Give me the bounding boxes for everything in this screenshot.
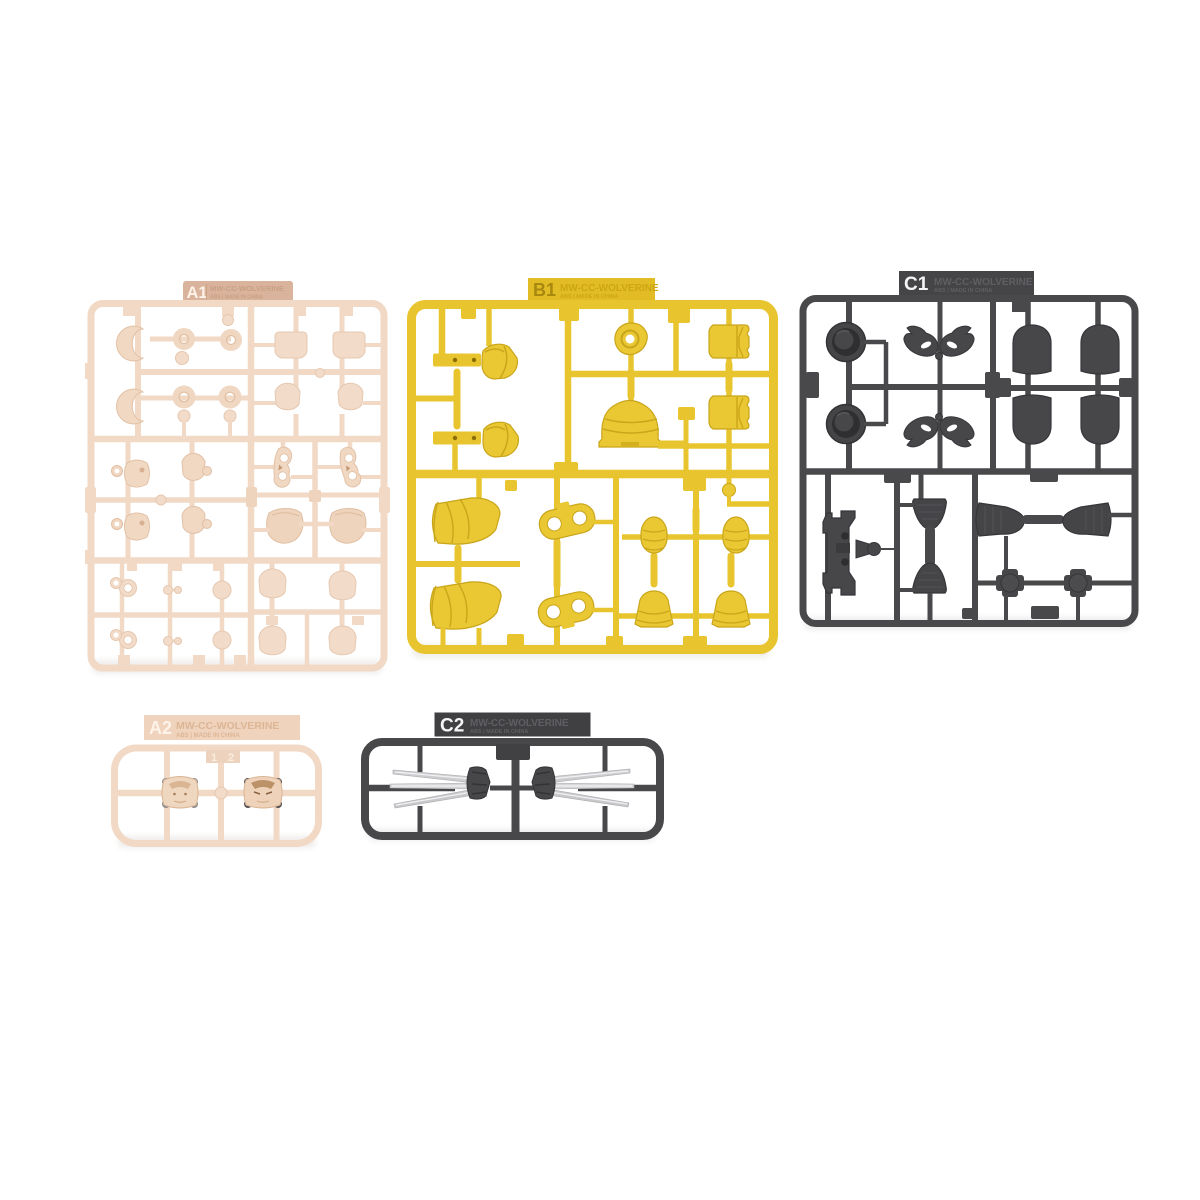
svg-text:MW-CC-WOLVERINE: MW-CC-WOLVERINE — [470, 718, 569, 729]
svg-text:1: 1 — [211, 752, 217, 764]
svg-text:ABS | MADE IN CHINA: ABS | MADE IN CHINA — [176, 733, 240, 739]
svg-text:C2: C2 — [440, 716, 464, 737]
svg-text:MW-CC-WOLVERINE: MW-CC-WOLVERINE — [210, 284, 284, 293]
svg-text:ABS | MADE IN CHINA: ABS | MADE IN CHINA — [210, 295, 263, 301]
svg-text:ABS | MADE IN CHINA: ABS | MADE IN CHINA — [470, 729, 528, 735]
svg-text:MW-CC-WOLVERINE: MW-CC-WOLVERINE — [560, 283, 659, 294]
svg-text:ABS | MADE IN CHINA: ABS | MADE IN CHINA — [934, 288, 992, 294]
svg-text:A1: A1 — [187, 284, 208, 302]
svg-text:2: 2 — [228, 752, 234, 764]
svg-text:ABS | MADE IN CHINA: ABS | MADE IN CHINA — [560, 294, 618, 300]
svg-text:MW-CC-WOLVERINE: MW-CC-WOLVERINE — [176, 720, 279, 732]
svg-text:MW-CC-WOLVERINE: MW-CC-WOLVERINE — [934, 277, 1033, 288]
svg-text:C1: C1 — [904, 274, 929, 295]
svg-text:B1: B1 — [533, 280, 556, 300]
svg-text:A2: A2 — [149, 718, 172, 738]
